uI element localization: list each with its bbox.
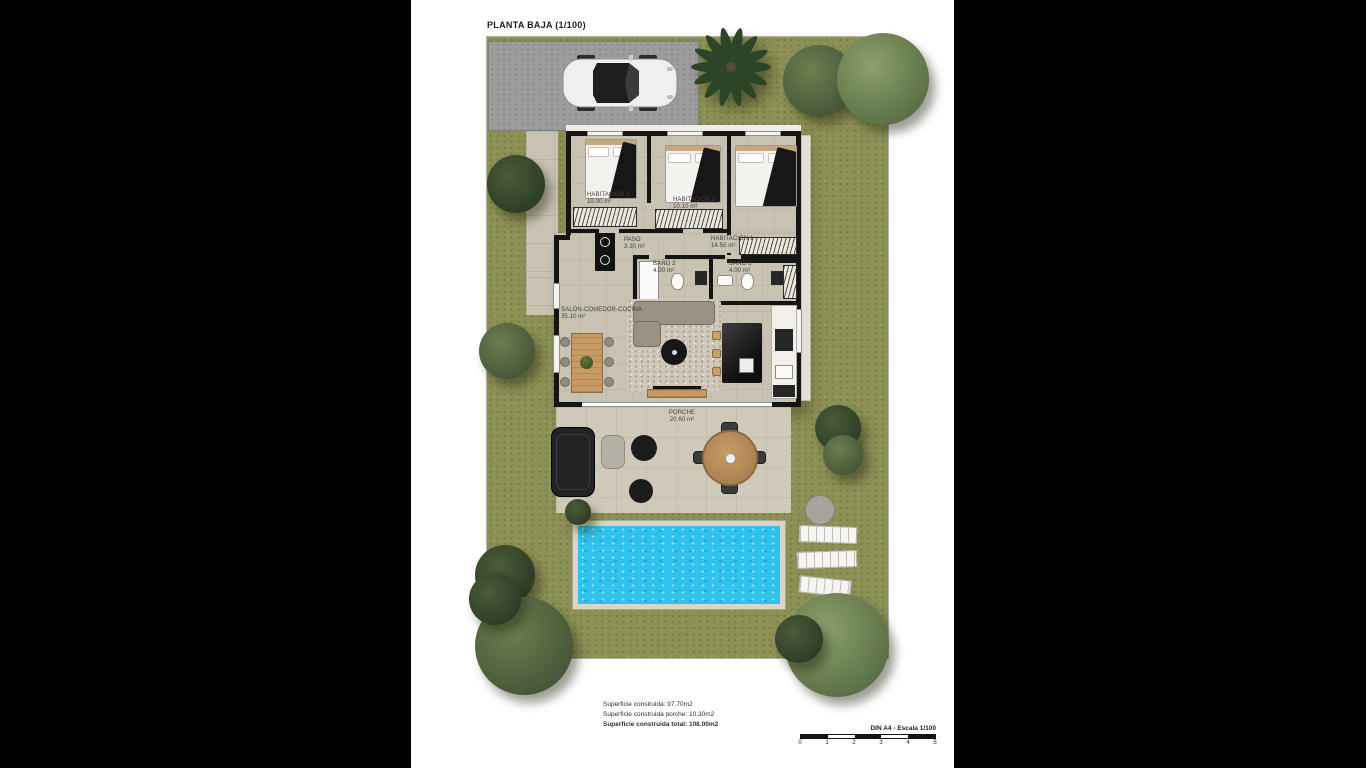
window (587, 131, 623, 136)
room-label-bano-2: BAÑO 2 4.00 m² (653, 261, 676, 275)
double-bed (665, 145, 721, 203)
appliance-column (595, 233, 615, 271)
room-area: 3.30 m² (624, 244, 645, 251)
pouf (631, 435, 657, 461)
kitchen-island (722, 323, 762, 383)
dining-chair (560, 377, 570, 387)
room-area: 10.00 m² (587, 199, 629, 206)
tree (479, 323, 535, 379)
room-name: PASO (624, 237, 645, 244)
plan-sheet: PLANTA BAJA (1/100) (411, 0, 954, 768)
window (553, 335, 560, 373)
summary-line: Superficie construida: 97.70m2 (603, 700, 718, 710)
wall (566, 131, 571, 235)
scale-tick: 0 (798, 740, 801, 746)
wall (566, 229, 731, 233)
dining-chair (560, 337, 570, 347)
room-area: 4.00 m² (729, 268, 752, 275)
summary-line: Superficie construida porche: 10.30m2 (603, 710, 718, 720)
sun-lounger (797, 550, 858, 569)
double-bed (735, 145, 797, 207)
toilet (741, 273, 754, 290)
sliding-glass-door (582, 402, 772, 407)
kitchen-stool (712, 367, 721, 376)
scale-tick: 1 (825, 740, 828, 746)
screenshot-stage: PLANTA BAJA (1/100) (0, 0, 1366, 768)
wall (709, 255, 713, 305)
bush (487, 155, 545, 213)
dining-chair (560, 357, 570, 367)
toilet (671, 273, 684, 290)
tv-unit (647, 389, 707, 398)
scale-bar-segments (800, 734, 936, 739)
room-name: HABITACIÓN 3 (587, 192, 629, 199)
wall (647, 131, 651, 203)
kitchen-stool (712, 331, 721, 340)
bush (775, 615, 823, 663)
swimming-pool (573, 521, 785, 609)
wardrobe (655, 209, 723, 229)
double-bed (585, 139, 637, 199)
wardrobe (783, 265, 797, 299)
car-top-view (559, 53, 681, 113)
room-area: 20.60 m² (637, 417, 727, 424)
room-label-salon: SALÓN-COMEDOR-COCINA 35.10 m² (561, 307, 642, 321)
room-name: PORCHE (637, 410, 727, 417)
dining-chair (604, 377, 614, 387)
dining-chair (604, 337, 614, 347)
bush (469, 573, 521, 625)
scale-label: DIN A4 - Escala 1/100 (800, 725, 936, 732)
room-label-bano-1: BAÑO 1 4.00 m² (729, 261, 752, 275)
sun-lounger (799, 525, 858, 544)
room-label-paso: PASO 3.30 m² (624, 237, 645, 251)
room-label-habitacion-3: HABITACIÓN 3 10.00 m² (587, 192, 629, 206)
door-opening (683, 229, 703, 233)
palm-tree (689, 25, 773, 109)
room-area: 35.10 m² (561, 314, 642, 321)
tree (837, 33, 929, 125)
room-label-habitacion-1: HABITACIÓN 1 14.50 m² (711, 236, 753, 250)
page-title: PLANTA BAJA (1/100) (487, 20, 586, 30)
terrace-plant (565, 499, 591, 525)
room-name: BAÑO 1 (729, 261, 752, 268)
door-opening (649, 255, 665, 259)
room-label-habitacion-2: HABITACIÓN 2 10.10 m² (673, 197, 715, 211)
scale-bar: DIN A4 - Escala 1/100 0 1 2 3 4 5 (800, 725, 936, 749)
table-plant (580, 356, 593, 369)
scale-ticks: 0 1 2 3 4 5 (800, 740, 936, 749)
window (553, 283, 560, 309)
kitchen-sink (775, 365, 793, 379)
scale-tick: 5 (933, 740, 936, 746)
room-area: 4.00 m² (653, 268, 676, 275)
room-name: BAÑO 2 (653, 261, 676, 268)
wardrobe (573, 207, 637, 227)
outdoor-dining-table (702, 430, 758, 486)
bath-cabinet (695, 271, 707, 285)
tv-screen (653, 386, 701, 389)
coffee-table (661, 339, 687, 365)
room-label-porche: PORCHE 20.60 m² (637, 410, 727, 424)
surface-summary: Superficie construida: 97.70m2 Superfici… (603, 700, 718, 730)
room-area: 10.10 m² (673, 204, 715, 211)
dining-chair (604, 357, 614, 367)
pouf (629, 479, 653, 503)
site-plan: HABITACIÓN 3 10.00 m² HABITACIÓN 2 10.10… (486, 36, 889, 659)
summary-line-total: Superficie construida total: 108.00m2 (603, 720, 718, 730)
cooktop (775, 329, 793, 351)
wall (554, 235, 559, 407)
fridge (773, 385, 795, 397)
wall (633, 255, 637, 305)
scale-tick: 4 (906, 740, 909, 746)
room-area: 14.50 m² (711, 243, 753, 250)
side-walkway (801, 135, 811, 401)
sink (717, 275, 733, 286)
door-opening (725, 255, 741, 259)
window (667, 131, 703, 136)
side-table (805, 495, 835, 525)
room-name: HABITACIÓN 2 (673, 197, 715, 204)
bush (823, 435, 863, 475)
window (745, 131, 781, 136)
kitchen-stool (712, 349, 721, 358)
scale-tick: 3 (879, 740, 882, 746)
scale-tick: 2 (852, 740, 855, 746)
sofa-chaise (633, 321, 661, 347)
room-name: SALÓN-COMEDOR-COCINA (561, 307, 642, 314)
outdoor-sofa (551, 427, 595, 497)
wall (554, 235, 570, 240)
room-name: HABITACIÓN 1 (711, 236, 753, 243)
bath-cabinet (771, 271, 783, 285)
ottoman (601, 435, 625, 469)
